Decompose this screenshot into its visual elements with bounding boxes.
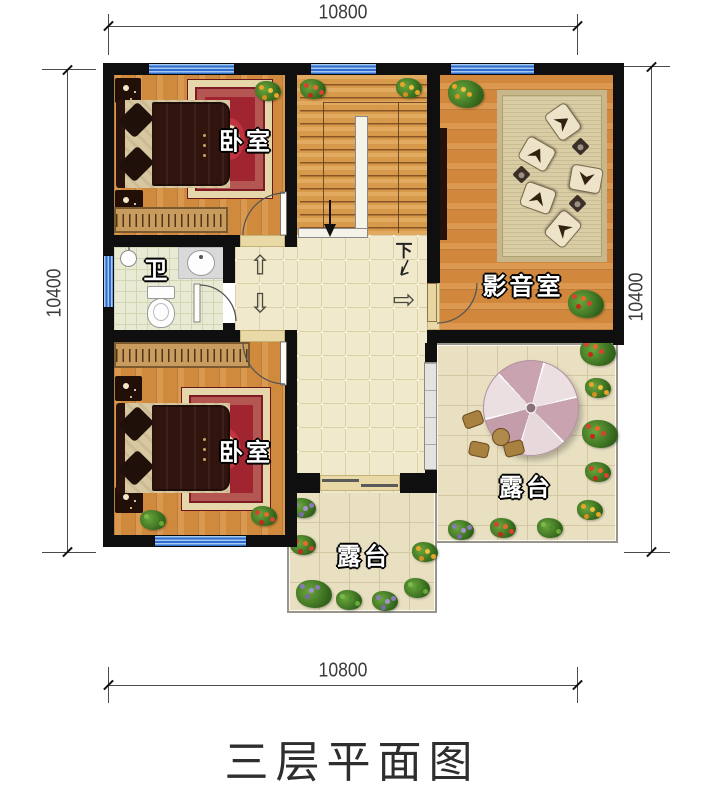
window (148, 63, 235, 75)
media-room-label: 影音室 (483, 267, 564, 302)
stair-railing (355, 116, 368, 238)
wall (285, 473, 320, 493)
round-table (492, 428, 510, 446)
plant-icon (396, 78, 422, 98)
wardrobe (114, 207, 228, 233)
sliding-door (320, 475, 400, 491)
wall (114, 235, 240, 247)
bathroom-label: 卫 (144, 251, 171, 286)
wall (285, 63, 297, 247)
nightstand (115, 376, 142, 401)
plant-icon (255, 81, 281, 101)
stair-guide-line (323, 102, 324, 233)
plant-icon (296, 580, 332, 608)
dimension-value: 10800 (319, 2, 368, 25)
dimension-line (108, 26, 578, 27)
dimension-line (651, 67, 652, 553)
arrow-down-icon: ⇩ (249, 289, 272, 320)
arrow-right-icon: ⇨ (393, 285, 416, 316)
dimension-value: 10400 (44, 269, 67, 318)
door-threshold (427, 283, 440, 330)
wardrobe (114, 342, 250, 368)
plant-icon (140, 510, 166, 530)
plant-icon (585, 462, 611, 482)
page-title: 三层平面图 (225, 726, 480, 790)
wall (427, 330, 624, 343)
sliding-door-leaf (322, 479, 359, 482)
wall (103, 330, 240, 342)
hallway-floor (297, 235, 437, 493)
dimension-line (67, 70, 68, 553)
dimension-value: 10400 (626, 273, 649, 322)
arrow-up-icon: ⇧ (249, 251, 272, 282)
wall (400, 473, 437, 493)
extension-line (42, 552, 96, 553)
stair-guide-line (323, 102, 427, 103)
plant-icon (372, 591, 398, 611)
terrace-right-label: 露台 (499, 468, 553, 503)
plant-icon (585, 378, 611, 398)
door-threshold (240, 235, 285, 247)
window (450, 63, 535, 75)
plant-icon (582, 420, 618, 448)
bed-headboard (116, 403, 125, 493)
plant-icon (412, 542, 438, 562)
plant-icon (577, 500, 603, 520)
window (310, 63, 377, 75)
floor-plan: 10800 10800 10400 10400 (0, 0, 711, 800)
lounge-chair (568, 163, 604, 194)
extension-line (624, 66, 670, 67)
plant-icon (568, 290, 604, 318)
stairs-down-label: 下 (396, 237, 413, 262)
plant-icon (336, 590, 362, 610)
plant-icon (537, 518, 563, 538)
plant-icon (300, 79, 326, 99)
bedroom-top-label: 卧室 (219, 122, 273, 157)
terrace-window (424, 362, 437, 470)
plant-icon (448, 520, 474, 540)
sink (187, 250, 215, 276)
wall (425, 343, 437, 362)
terrace-bottom-label: 露台 (337, 537, 391, 572)
extension-line (577, 14, 578, 55)
sliding-door-leaf (361, 484, 398, 487)
window (103, 255, 114, 308)
stair-railing-cap (298, 228, 368, 238)
plant-icon (404, 578, 430, 598)
bedroom-bottom-label: 卧室 (219, 433, 273, 468)
stair-guide-line (398, 102, 399, 233)
bed (116, 100, 230, 188)
shower-head (120, 250, 137, 267)
toilet-bowl (147, 298, 175, 328)
extension-line (108, 14, 109, 55)
plant-icon (251, 506, 277, 526)
wall (427, 63, 440, 283)
door-threshold (240, 330, 285, 342)
wall (223, 235, 235, 283)
tv-screen (440, 128, 447, 240)
plant-icon (448, 80, 484, 108)
dimension-line (108, 685, 578, 686)
window (154, 535, 247, 547)
bed-headboard (116, 100, 125, 188)
bed (116, 403, 230, 493)
dimension-value: 10800 (319, 660, 368, 683)
wall (285, 330, 297, 547)
wall (613, 63, 624, 345)
plant-icon (490, 518, 516, 538)
